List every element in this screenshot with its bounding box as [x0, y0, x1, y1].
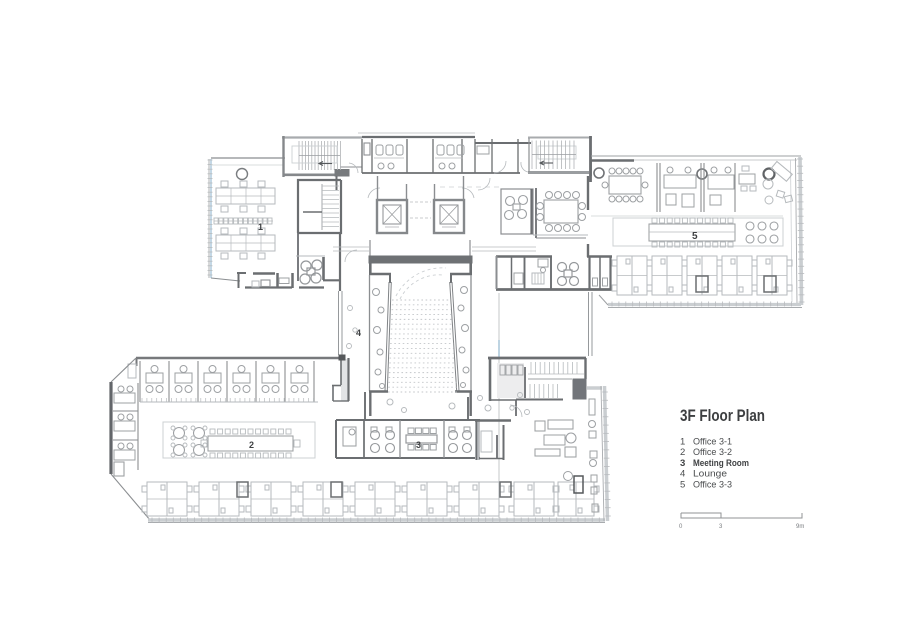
svg-text:1: 1 [680, 437, 685, 448]
svg-text:3: 3 [416, 440, 421, 450]
svg-text:Office 3-1: Office 3-1 [693, 437, 732, 448]
svg-text:4: 4 [680, 469, 685, 480]
svg-text:2: 2 [680, 447, 685, 458]
svg-text:Office 3-2: Office 3-2 [693, 447, 732, 458]
svg-text:3: 3 [680, 458, 685, 469]
svg-text:1: 1 [258, 222, 263, 232]
svg-text:5: 5 [692, 231, 698, 242]
svg-text:3F Floor Plan: 3F Floor Plan [680, 407, 765, 425]
svg-text:Office 3-3: Office 3-3 [693, 479, 732, 490]
svg-text:5: 5 [680, 479, 685, 490]
svg-text:Lounge: Lounge [693, 469, 727, 480]
svg-text:9m: 9m [796, 524, 804, 530]
svg-text:2: 2 [249, 440, 254, 450]
svg-text:Meeting Room: Meeting Room [693, 458, 749, 469]
